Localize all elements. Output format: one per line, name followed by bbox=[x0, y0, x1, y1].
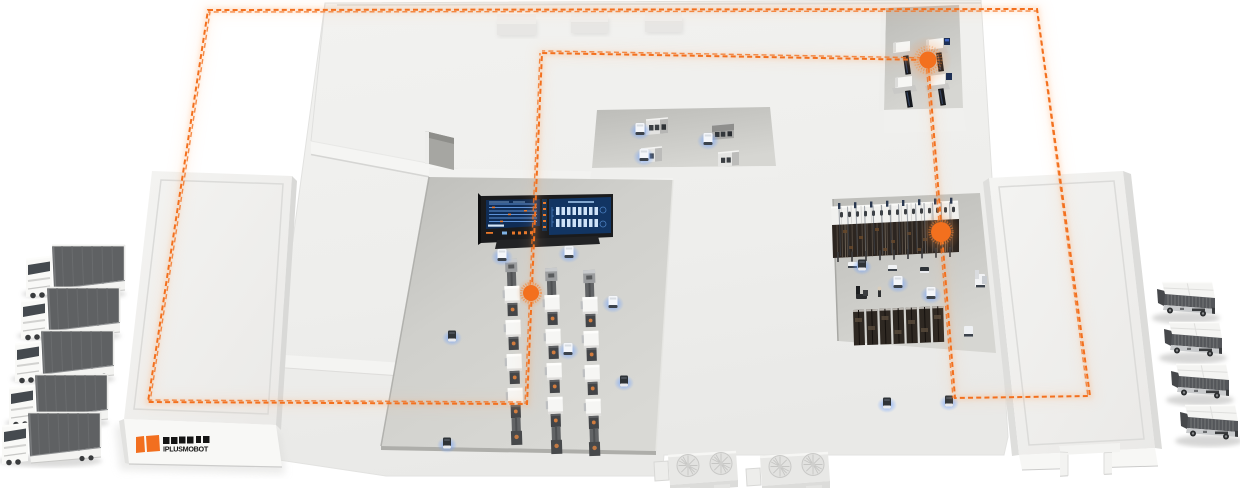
svg-text:IPLUSMOBOT: IPLUSMOBOT bbox=[163, 445, 209, 454]
